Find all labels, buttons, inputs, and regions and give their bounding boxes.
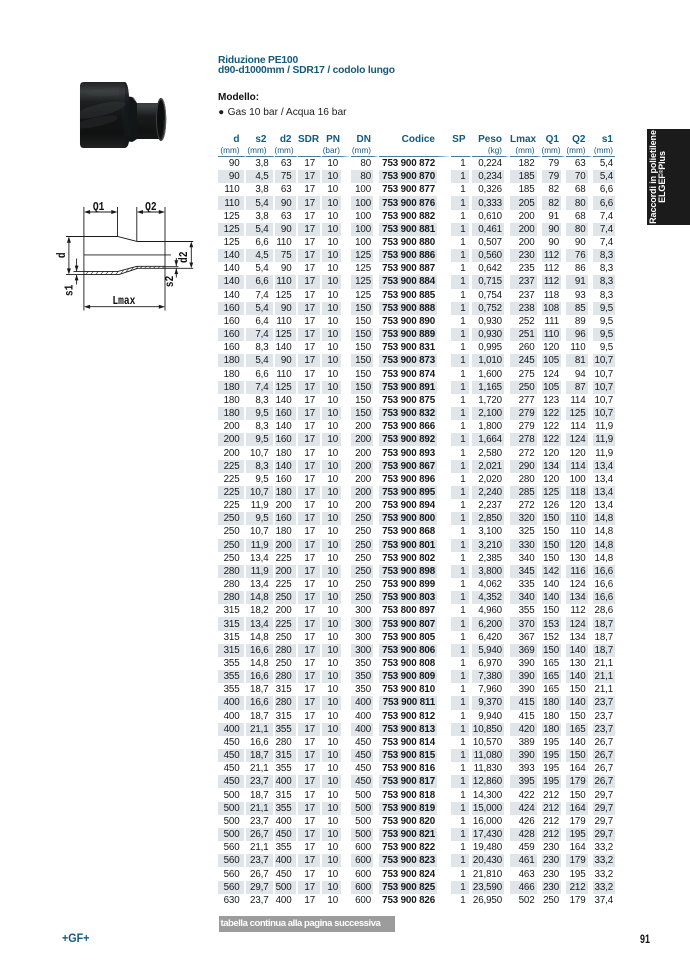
svg-text:d: d	[56, 252, 69, 258]
svg-text:Lmax: Lmax	[112, 295, 135, 308]
svg-text:s2: s2	[164, 276, 177, 288]
svg-text:Q2: Q2	[145, 201, 157, 214]
svg-text:d2: d2	[178, 252, 191, 264]
svg-text:Q1: Q1	[93, 201, 105, 214]
svg-text:s1: s1	[63, 284, 76, 296]
